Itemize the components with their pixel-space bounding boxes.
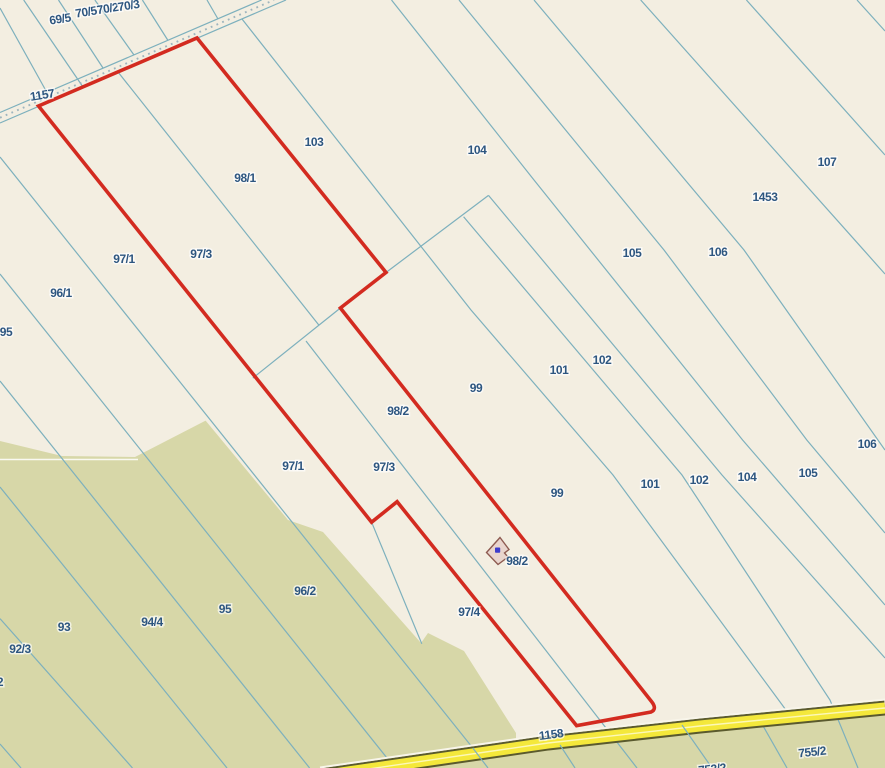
svg-text:101: 101: [550, 363, 569, 377]
svg-text:97/1: 97/1: [282, 459, 304, 473]
svg-text:99: 99: [470, 381, 483, 395]
svg-text:104: 104: [738, 470, 757, 484]
svg-text:99: 99: [551, 486, 564, 500]
svg-text:103: 103: [305, 135, 324, 149]
svg-text:98/2: 98/2: [506, 554, 528, 568]
svg-text:97/3: 97/3: [373, 460, 395, 474]
svg-text:101: 101: [641, 477, 660, 491]
svg-text:95: 95: [219, 602, 232, 616]
svg-text:97/3: 97/3: [190, 247, 212, 261]
svg-text:755/2: 755/2: [798, 744, 828, 761]
svg-text:95: 95: [0, 325, 13, 339]
svg-text:1453: 1453: [753, 190, 779, 204]
svg-text:94/4: 94/4: [141, 615, 163, 629]
svg-text:98/1: 98/1: [234, 171, 256, 185]
svg-text:106: 106: [858, 437, 877, 451]
svg-text:96/2: 96/2: [294, 584, 316, 598]
svg-text:92/3: 92/3: [9, 642, 31, 656]
svg-text:96/1: 96/1: [50, 286, 72, 300]
svg-text:97/4: 97/4: [458, 605, 480, 619]
svg-text:106: 106: [709, 245, 728, 259]
svg-text:97/1: 97/1: [113, 252, 135, 266]
svg-text:102: 102: [593, 353, 612, 367]
svg-text:105: 105: [799, 466, 818, 480]
svg-text:98/2: 98/2: [387, 404, 409, 418]
svg-text:107: 107: [818, 155, 837, 169]
svg-text:93: 93: [58, 620, 71, 634]
svg-text:104: 104: [468, 143, 487, 157]
svg-text:102: 102: [690, 473, 709, 487]
svg-text:105: 105: [623, 246, 642, 260]
